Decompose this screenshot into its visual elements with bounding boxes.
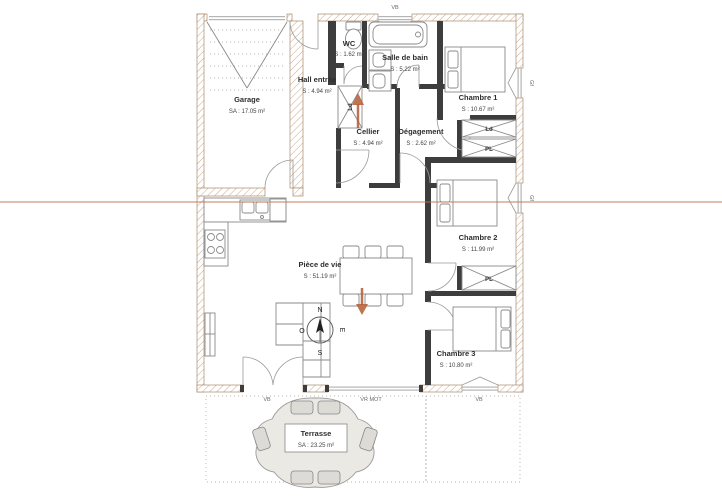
window-chambre3 (462, 377, 498, 391)
garage-ramp (207, 22, 287, 90)
bed-chambre2 (437, 180, 497, 226)
closet-ld-label: Ld (485, 127, 493, 133)
dining-table (340, 246, 412, 306)
window-chambre2 (508, 183, 522, 213)
compass-n: N (317, 307, 322, 314)
chambre3-label: Chambre 3 (437, 349, 476, 358)
gf-chambre1-label: Gf (528, 80, 534, 86)
garage-area: SA : 17.05 m² (229, 109, 265, 115)
wc-door (344, 66, 362, 84)
stove-symbol (205, 230, 225, 258)
gf-chambre2-label: Gf (528, 195, 534, 201)
chambre3-area: S : 10.80 m² (440, 363, 473, 369)
vb-bottom-right-label: VB (475, 397, 483, 403)
compass-o: O (299, 328, 305, 335)
bathtub-symbol (369, 22, 427, 47)
hall-label: Hall entrée (298, 75, 336, 84)
hall-area: S : 4.94 m² (302, 89, 331, 95)
garage-door-interior (265, 160, 293, 188)
bay-window (325, 385, 423, 392)
window-chambre1 (508, 68, 522, 98)
cellier-label: Cellier (357, 127, 380, 136)
bed-chambre1 (445, 47, 505, 92)
chambre3-door (428, 302, 456, 330)
terrasse-area: SA : 23.25 m² (298, 443, 334, 449)
garage-door-symbol (209, 16, 285, 20)
salle-de-bain-label: Salle de bain (382, 53, 428, 62)
chambre2-door (428, 263, 456, 291)
wc-area: S : 1.62 m² (334, 52, 363, 58)
window-left (205, 313, 215, 356)
wc-label: WC (343, 39, 356, 48)
chambre1-label: Chambre 1 (459, 93, 498, 102)
piece-de-vie-label: Pièce de vie (299, 260, 342, 269)
degagement-label: Dégagement (398, 127, 444, 136)
salle-de-bain-area: S : 5.22 m² (390, 67, 419, 73)
bed-chambre3 (453, 307, 511, 351)
double-door-terrace (240, 357, 307, 392)
chambre2-label: Chambre 2 (459, 233, 498, 242)
garage-label: Garage (234, 95, 260, 104)
closet-pl-label: PL (485, 147, 493, 153)
terrasse-label: Terrasse (301, 429, 332, 438)
kitchen-counter (204, 198, 286, 266)
sofa-symbol (276, 303, 330, 377)
closet-pl2-label: PL (485, 277, 493, 283)
degagement-area: S : 2.62 m² (406, 141, 435, 147)
cellier-area: S : 4.94 m² (353, 141, 382, 147)
compass-s: S (318, 350, 323, 357)
chambre2-area: S : 11.99 m² (462, 247, 494, 253)
vb-bottom-left-label: VB (263, 397, 271, 403)
floor-plan: Terrasse SA : 23.25 m² (0, 0, 722, 500)
piece-de-vie-area: S : 51.19 m² (304, 274, 337, 280)
compass-e: E (338, 328, 345, 333)
vr-mot-label: VR MOT (360, 397, 382, 403)
vb-top-label: VB (391, 5, 399, 11)
chambre1-area: S : 10.67 m² (462, 107, 495, 113)
